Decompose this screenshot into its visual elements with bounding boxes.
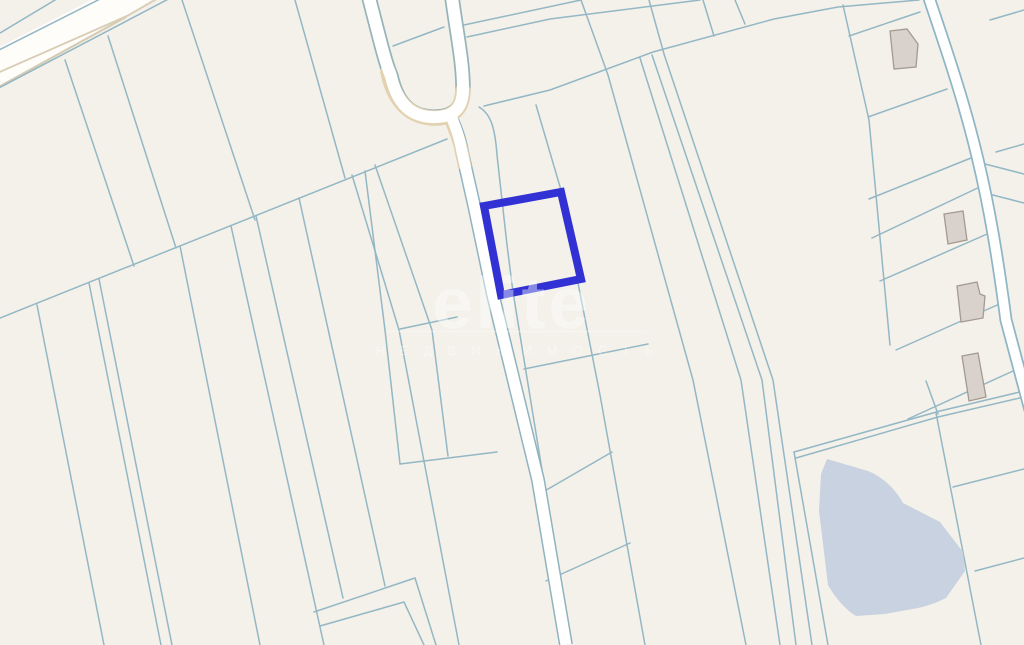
svg-text:НЕДВИЖИМОСТЬ: НЕДВИЖИМОСТЬ bbox=[376, 343, 669, 358]
